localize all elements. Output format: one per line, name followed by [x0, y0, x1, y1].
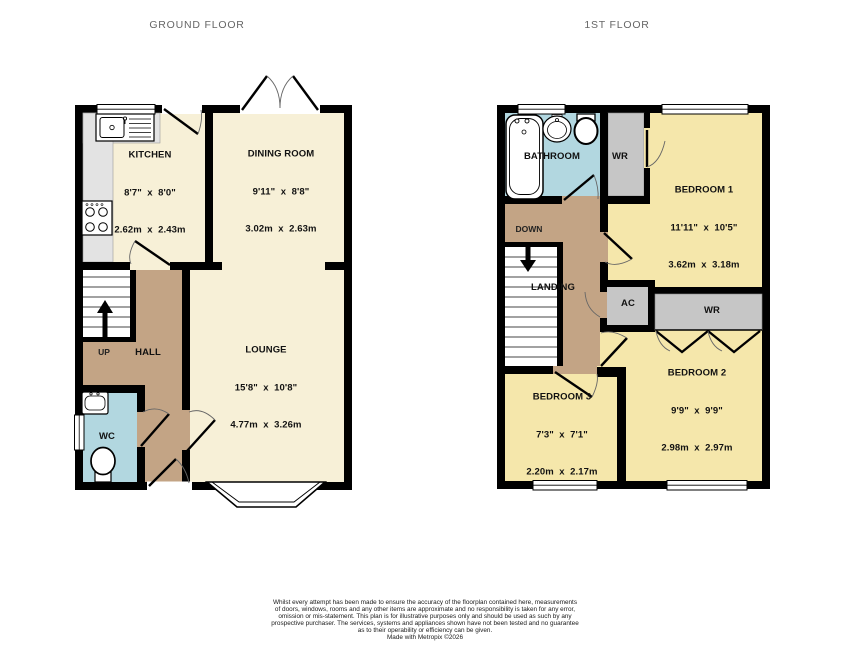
floorplan-drawing: [0, 0, 850, 649]
stairs-down: [505, 242, 563, 366]
bathroom-window: [518, 105, 565, 115]
wc-toilet-icon: [91, 448, 115, 483]
floorplan-page: GROUND FLOOR 1ST FLOOR KITCHEN 8'7" x 8'…: [0, 0, 850, 649]
room-label-bedroom1: BEDROOM 1 11'11" x 10'5" 3.62m x 3.18m: [668, 159, 739, 297]
room-label-dining: DINING ROOM 9'11" x 8'8" 3.02m x 2.63m: [245, 123, 316, 261]
room-label-ac: AC: [621, 298, 635, 311]
room-label-bathroom: BATHROOM: [524, 151, 580, 164]
room-label-wc: WC: [99, 431, 115, 444]
room-label-bedroom2: BEDROOM 2 9'9" x 9'9" 2.98m x 2.97m: [661, 342, 732, 480]
room-label-lounge: LOUNGE 15'8" x 10'8" 4.77m x 3.26m: [230, 319, 301, 457]
first-floor-title: 1ST FLOOR: [584, 19, 649, 31]
room-label-landing: LANDING: [531, 282, 575, 295]
bay-window: [207, 482, 325, 507]
toilet-icon: [575, 114, 598, 144]
stairs-down-label: DOWN: [516, 224, 543, 234]
room-label-hall: HALL: [135, 347, 161, 360]
stairs-up: [83, 270, 136, 342]
bedroom2-window: [667, 481, 747, 491]
hob-icon: [82, 201, 112, 235]
room-label-wr-top: WR: [612, 151, 628, 164]
disclaimer-text: Whilst every attempt has been made to en…: [105, 599, 745, 641]
bedroom1-window: [662, 105, 748, 115]
kitchen-window: [97, 105, 155, 115]
room-label-bedroom3: BEDROOM 3 7'3" x 7'1" 2.20m x 2.17m: [526, 366, 597, 504]
stairs-up-label: UP: [98, 347, 110, 357]
room-label-kitchen: KITCHEN 8'7" x 8'0" 2.62m x 2.43m: [114, 124, 185, 262]
wc-window: [75, 415, 85, 450]
wc-basin-icon: [82, 392, 108, 414]
ground-floor-title: GROUND FLOOR: [149, 19, 244, 31]
room-label-wr-mid: WR: [704, 305, 720, 318]
